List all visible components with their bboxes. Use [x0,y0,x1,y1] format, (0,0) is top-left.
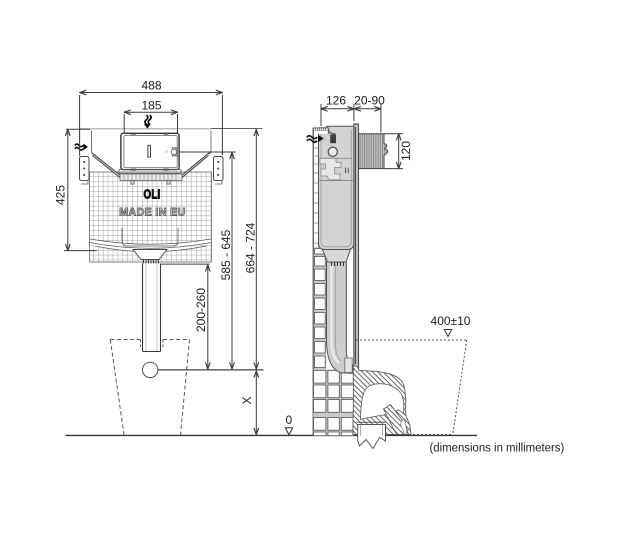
svg-text:0: 0 [285,413,292,427]
svg-text:20-90: 20-90 [354,94,385,108]
svg-text:120: 120 [399,141,413,161]
svg-text:(dimensions in millimeters): (dimensions in millimeters) [430,441,565,454]
svg-text:X: X [240,396,254,404]
svg-text:200-260: 200-260 [194,288,208,332]
svg-text:MADE IN EU: MADE IN EU [119,207,185,219]
svg-text:185: 185 [141,99,161,113]
svg-text:585 - 645: 585 - 645 [219,229,233,280]
svg-text:425: 425 [54,185,68,205]
svg-text:488: 488 [141,79,161,93]
svg-text:OLI: OLI [144,188,161,201]
svg-text:126: 126 [326,94,346,108]
svg-text:400±10: 400±10 [431,314,471,328]
svg-text:664 - 724: 664 - 724 [244,222,258,273]
